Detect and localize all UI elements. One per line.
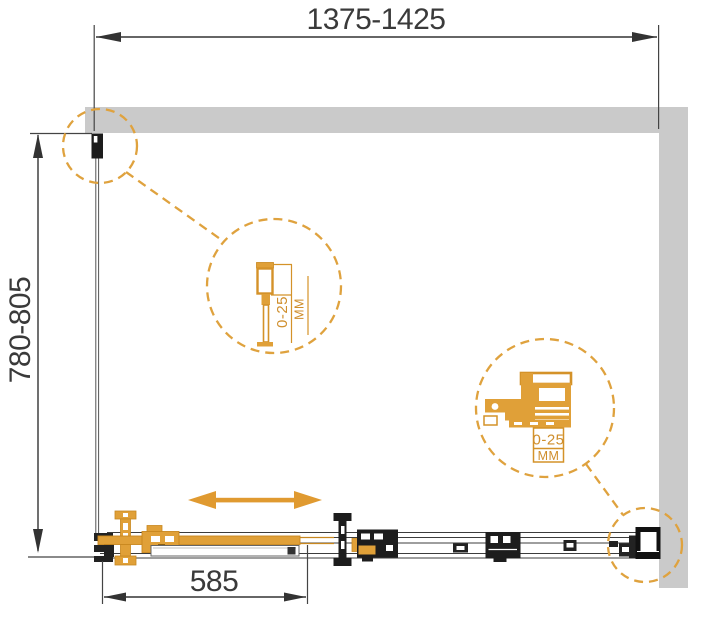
detail-leader-line-2	[586, 464, 623, 515]
roller-adjustment-unit-label: MM	[538, 449, 560, 463]
arrow-right-icon	[632, 32, 657, 42]
height-dimension: 780-805	[4, 134, 102, 558]
door-width-dimension-label: 585	[190, 565, 239, 598]
arrow-right-icon	[284, 593, 306, 602]
wall-profile-bottom-right	[609, 527, 661, 559]
slide-direction-arrow	[188, 491, 322, 509]
detail-leader-line-1	[126, 172, 223, 241]
roller-carriage-left	[357, 530, 398, 562]
roller-detail-drawing: 0-25 MM	[484, 373, 571, 463]
roller-adjustment-range-label: 0-25	[532, 432, 564, 449]
track-fitting	[564, 540, 577, 551]
wall-profile-top-left	[92, 134, 104, 159]
arrow-left-icon	[104, 593, 126, 602]
roller-carriage-right	[486, 532, 521, 562]
sliding-door-panel	[151, 546, 299, 557]
center-track-post	[334, 513, 352, 566]
arrow-down-icon	[33, 529, 43, 553]
wall-profile-adjustment-unit-label: MM	[293, 298, 307, 320]
fixed-glass-panel	[96, 157, 99, 533]
wall-top	[85, 107, 688, 133]
wall-profile-adjustment-range-label: 0-25	[274, 296, 291, 328]
wall-right	[659, 107, 688, 588]
track-stop	[453, 544, 468, 553]
height-dimension-label: 780-805	[4, 277, 37, 384]
width-dimension-label: 1375-1425	[307, 3, 446, 36]
arrow-up-icon	[33, 134, 43, 158]
wall-profile-detail-drawing: 0-25 MM	[257, 263, 309, 347]
detail-circle-wall-profile	[207, 219, 341, 353]
arrow-left-icon	[96, 32, 121, 42]
shower-enclosure-technical-drawing: 1375-1425 780-805	[0, 0, 701, 635]
